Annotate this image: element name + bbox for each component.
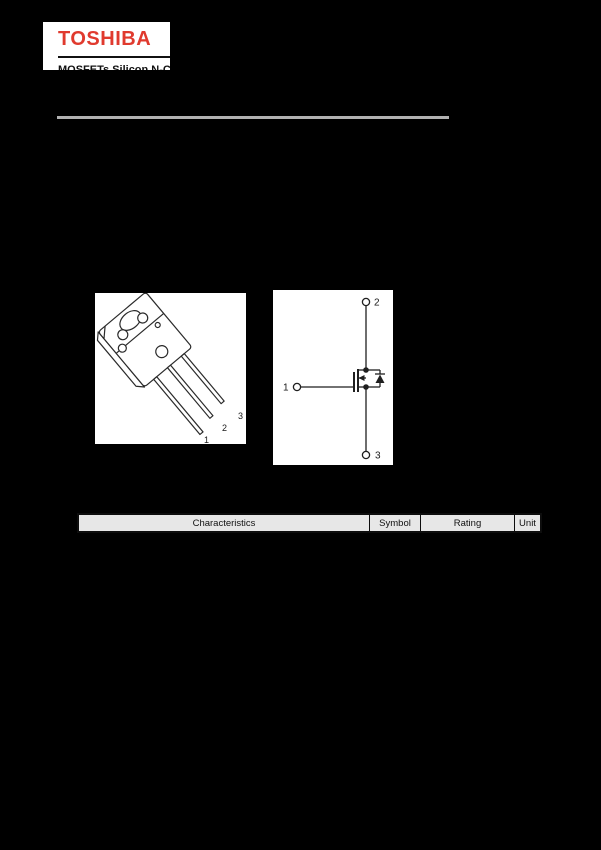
datasheet-page: TOSHIBA MOSFETs Silicon N-C xyxy=(0,0,601,850)
body-arrow-icon xyxy=(359,375,365,381)
source-terminal-circle xyxy=(362,451,369,458)
symbol-pin-label-gate: 1 xyxy=(283,383,289,394)
drain-terminal-circle xyxy=(362,298,369,305)
symbol-pin-label-source: 3 xyxy=(375,451,381,462)
logo-subtitle: MOSFETs Silicon N-C xyxy=(58,64,170,70)
logo-underline xyxy=(58,56,170,58)
gate-terminal-circle xyxy=(293,383,300,390)
section-divider-rule xyxy=(57,116,449,119)
package-body xyxy=(98,293,192,387)
package-lead-2 xyxy=(167,365,212,418)
header-cell-characteristics: Characteristics xyxy=(79,515,369,531)
header-cell-unit: Unit xyxy=(514,515,540,531)
package-pin-label-2: 2 xyxy=(222,423,227,433)
toshiba-logo: TOSHIBA xyxy=(58,28,151,51)
body-diode-icon xyxy=(376,375,385,384)
package-pin-label-3: 3 xyxy=(238,411,243,421)
mosfet-symbol-box: 2 3 1 xyxy=(273,290,393,465)
package-outline-drawing-icon: 1 2 3 xyxy=(95,293,246,444)
ratings-table-header-row: Characteristics Symbol Rating Unit xyxy=(77,513,542,533)
package-pin-label-1: 1 xyxy=(204,435,209,444)
symbol-pin-label-drain: 2 xyxy=(374,298,380,309)
package-figure-box: 1 2 3 xyxy=(95,293,246,444)
mosfet-symbol-drawing-icon: 2 3 1 xyxy=(273,290,393,465)
source-junction-dot xyxy=(363,384,369,390)
header-cell-symbol: Symbol xyxy=(369,515,420,531)
package-lead-1 xyxy=(154,377,203,435)
package-lead-3 xyxy=(181,354,224,404)
header-cell-rating: Rating xyxy=(420,515,514,531)
drain-junction-dot xyxy=(363,367,369,373)
toshiba-logo-box: TOSHIBA MOSFETs Silicon N-C xyxy=(43,22,170,70)
